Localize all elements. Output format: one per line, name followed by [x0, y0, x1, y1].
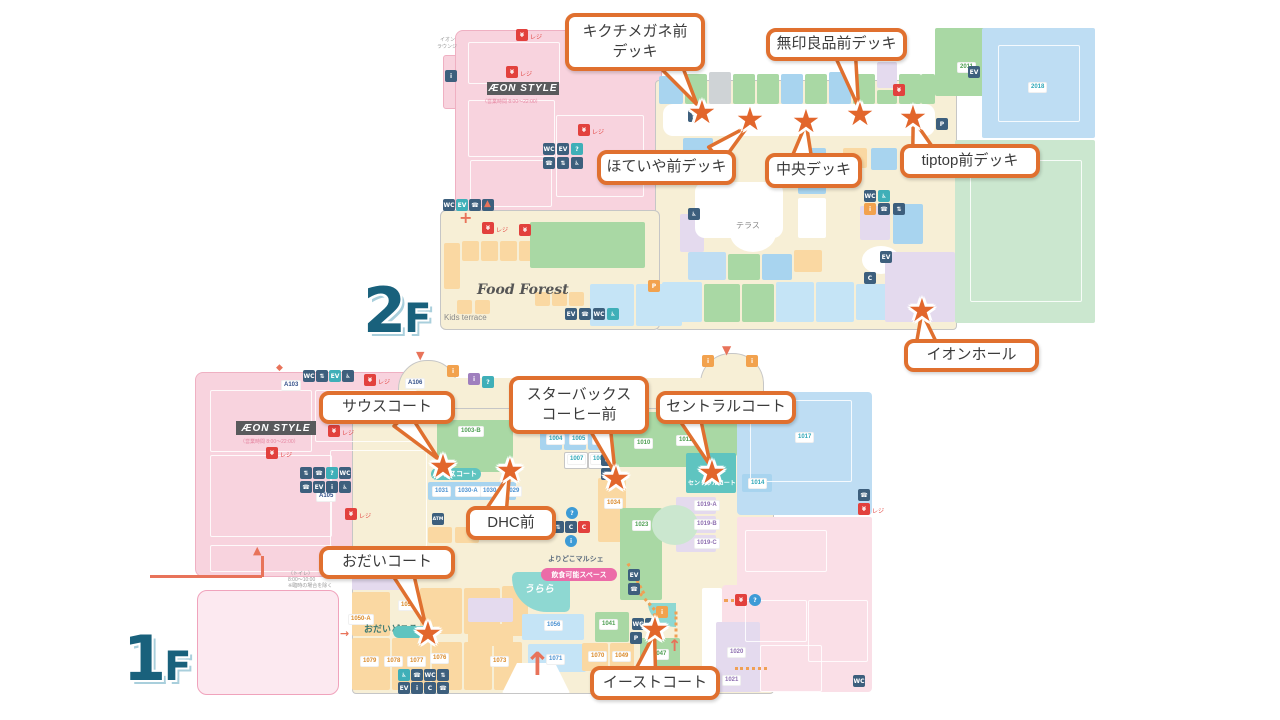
cashier-icon: ¥	[516, 29, 528, 41]
callout-label: tiptop前デッキ	[922, 151, 1019, 171]
phone-icon: ☎	[628, 583, 640, 595]
callout-label: スターバックス	[527, 385, 631, 405]
star-aeon-hall[interactable]: ★	[908, 294, 937, 326]
shop-number-badge: 2018	[1028, 82, 1047, 93]
escalator-icon: ⇅	[893, 203, 905, 215]
map-block	[776, 282, 814, 322]
dotted-route	[735, 667, 767, 670]
callout-label: DHC前	[487, 513, 535, 533]
map-block	[794, 250, 822, 272]
cashier-icon: ¥	[328, 425, 340, 437]
map-block	[444, 243, 460, 289]
cashier-icon: ¥	[506, 66, 518, 78]
route-line	[261, 556, 264, 577]
callout-label: ほていや前デッキ	[606, 157, 726, 177]
map-block	[468, 598, 513, 622]
star-starbucks[interactable]: ★	[602, 462, 631, 494]
elevator-icon: EV	[628, 569, 640, 581]
cashier-icon: ¥	[345, 508, 357, 520]
map-block	[500, 241, 517, 261]
medical-cross-icon: +	[459, 210, 472, 226]
shop-number-badge: 1030-A	[455, 486, 481, 497]
guide-icon: i	[746, 355, 758, 367]
cashier-label: レジ	[378, 377, 390, 386]
service-icon: i	[468, 373, 480, 385]
shop-number-badge: 1079	[360, 656, 379, 667]
star-odai-court[interactable]: ★	[414, 617, 443, 649]
map-text: よりどこマルシェ	[548, 554, 604, 564]
toilet-icon: WC	[853, 675, 865, 687]
guide-icon: i	[864, 203, 876, 215]
callout-label: 無印良品前デッキ	[776, 34, 896, 54]
callout-dhc-mae[interactable]: DHC前	[466, 506, 556, 540]
shop-number-badge: 1070	[588, 651, 607, 662]
shop-number-badge: 1077	[407, 656, 426, 667]
elevator-icon: EV	[565, 308, 577, 320]
wheelchair-icon: ♿	[878, 190, 890, 202]
elevator-icon: EV	[557, 143, 569, 155]
wheelchair-icon: ♿	[607, 308, 619, 320]
callout-east-court[interactable]: イーストコート	[590, 666, 720, 700]
map-block	[530, 222, 645, 268]
info-icon: ?	[749, 594, 761, 606]
elevator-icon: EV	[313, 481, 325, 493]
callout-starbucks-mae[interactable]: スターバックスコーヒー前	[509, 376, 649, 434]
aeon-style-logo: ÆON STYLE	[236, 421, 316, 435]
map-text: Kids terrace	[444, 313, 487, 322]
map-block	[798, 198, 826, 238]
shop-number-badge: A106	[405, 378, 425, 389]
shop-number-badge: 1004	[546, 434, 565, 445]
map-block	[742, 284, 774, 322]
star-hoteiya-deck[interactable]: ★	[736, 103, 765, 135]
outparcel-block	[197, 590, 339, 695]
map-text: Food Forest	[477, 282, 569, 298]
toilet-icon: WC	[593, 308, 605, 320]
shop-number-badge: 1041	[599, 619, 618, 630]
phone-icon: ☎	[411, 669, 423, 681]
cashier-icon: ¥	[519, 224, 531, 236]
route-arrow: ▲	[253, 545, 261, 556]
phone-icon: ☎	[300, 481, 312, 493]
guide-icon: i	[411, 682, 423, 694]
callout-label: サウスコート	[342, 397, 432, 417]
cashier-icon: ¥	[893, 84, 905, 96]
shop-number-badge: 1073	[490, 656, 509, 667]
cashier-label: レジ	[496, 225, 508, 234]
shop-number-badge: 1007	[567, 454, 586, 465]
callout-central-court[interactable]: セントラルコート	[656, 391, 796, 424]
escalator-icon: ⇅	[437, 669, 449, 681]
shop-number-badge: 1019-C	[694, 538, 720, 549]
map-block	[468, 624, 513, 646]
toilet-icon: WC	[543, 143, 555, 155]
shop-number-badge: A103	[281, 380, 301, 391]
callout-label: おだいコート	[342, 552, 432, 572]
callout-label: セントラルコート	[666, 397, 786, 417]
phone-icon: ☎	[543, 157, 555, 169]
entrance-arrow-down: ▼	[416, 350, 424, 361]
info-icon: ?	[571, 143, 583, 155]
aeon-style-logo: ÆON STYLE	[487, 82, 559, 95]
info-icon: i	[565, 535, 577, 547]
toilet-icon: WC	[303, 370, 315, 382]
map-block	[462, 241, 479, 261]
callout-muji-deck[interactable]: 無印良品前デッキ	[766, 28, 907, 61]
toilet-icon: WC	[424, 669, 436, 681]
entrance-arrow-down: ▼	[722, 344, 731, 356]
info-icon: ?	[566, 507, 578, 519]
shop-number-badge: 1020	[727, 647, 746, 658]
map-text: （営業時間 8:00〜22:00）	[482, 98, 541, 105]
map-text: （営業時間 8:00〜22:00）	[240, 438, 299, 445]
floor-label-1f: 1F	[123, 628, 189, 690]
info-icon: ?	[326, 467, 338, 479]
parking-icon: P	[648, 280, 660, 292]
cart-icon: C	[424, 682, 436, 694]
shop-number-badge: 1076	[430, 653, 449, 664]
callout-kikuchi-megane-deck[interactable]: キクチメガネ前デッキ	[565, 13, 705, 71]
star-chuo-deck[interactable]: ★	[792, 105, 821, 137]
callout-label: 中央デッキ	[776, 160, 851, 180]
cashier-label: レジ	[280, 450, 292, 459]
shop-number-badge: 1014	[748, 478, 767, 489]
cashier-label: レジ	[342, 428, 354, 437]
phone-icon: ☎	[878, 203, 890, 215]
atm-icon: ATM	[432, 513, 444, 525]
star-central-court[interactable]: ★	[698, 456, 727, 488]
shop-number-badge: 1019-B	[694, 519, 720, 530]
route-arrow: →	[340, 628, 349, 639]
map-text: うらら	[524, 580, 554, 595]
guide-icon: i	[702, 355, 714, 367]
map-block	[704, 284, 740, 322]
entrance-marker: ◆	[276, 364, 283, 373]
entrance-marker: ▲	[484, 200, 491, 209]
map-block	[805, 74, 827, 104]
parking-icon: P	[936, 118, 948, 130]
dotted-route	[675, 612, 678, 638]
callout-tiptop-deck[interactable]: tiptop前デッキ	[900, 144, 1040, 178]
map-text: ※臨時の場合を除く	[288, 582, 332, 589]
callout-south-court[interactable]: サウスコート	[319, 391, 455, 424]
map-text: ラウンジ	[437, 43, 457, 50]
phone-icon: ☎	[437, 682, 449, 694]
escalator-icon: ⇅	[316, 370, 328, 382]
shop-number-badge: 1034	[604, 498, 623, 509]
callout-label: デッキ	[612, 42, 657, 62]
garden-blob	[652, 505, 698, 545]
cashier-icon: ¥	[578, 124, 590, 136]
map-block	[464, 642, 492, 690]
entrance-arrow-up: ↑	[524, 648, 551, 680]
star-east-court[interactable]: ★	[641, 613, 670, 645]
elevator-icon: EV	[398, 682, 410, 694]
shop-number-badge: 1078	[384, 656, 403, 667]
callout-label: イーストコート	[603, 673, 707, 693]
map-block	[816, 282, 854, 322]
shop-number-badge: 1049	[612, 651, 631, 662]
cart-icon: C	[578, 521, 590, 533]
cashier-label: レジ	[520, 69, 532, 78]
wheelchair-icon: ♿	[398, 669, 410, 681]
shop-number-badge: 1017	[795, 432, 814, 443]
map-block	[781, 74, 803, 104]
floor-number-1f: 1	[123, 622, 164, 695]
wheelchair-icon: ♿	[339, 481, 351, 493]
map-block	[428, 527, 452, 543]
wheelchair-icon: ♿	[688, 208, 700, 220]
info-icon: ?	[482, 376, 494, 388]
shop-number-badge: 1023	[632, 520, 651, 531]
route-line	[150, 575, 262, 578]
map-block	[457, 300, 472, 314]
cashier-label: レジ	[359, 511, 371, 520]
elevator-icon: EV	[880, 251, 892, 263]
toilet-icon: WC	[864, 190, 876, 202]
guide-icon: i	[326, 481, 338, 493]
shop-number-badge: 1031	[432, 486, 451, 497]
cashier-icon: ¥	[482, 222, 494, 234]
entrance-arrow-up: ↑	[668, 638, 681, 654]
cashier-label: レジ	[592, 127, 604, 136]
cart-icon: C	[864, 272, 876, 284]
star-muji-deck[interactable]: ★	[846, 98, 875, 130]
cashier-icon: ¥	[364, 374, 376, 386]
floor-number-2f: 2	[363, 274, 404, 347]
eatin-space-pill: 飲食可能スペース	[541, 568, 617, 581]
map-layers: 20112018¥レジ¥レジ¥レジWCEV?☎⇅♿iWCEV☎♿¥レジ¥⇅♿¥P…	[0, 0, 1280, 720]
cashier-icon: ¥	[735, 594, 747, 606]
cashier-icon: ¥	[266, 447, 278, 459]
callout-hoteiya-deck[interactable]: ほていや前デッキ	[597, 150, 736, 185]
wheelchair-icon: ♿	[571, 157, 583, 169]
escalator-icon: ⇅	[300, 467, 312, 479]
cart-icon: C	[565, 521, 577, 533]
callout-odai-court[interactable]: おだいコート	[319, 546, 455, 579]
star-south-court[interactable]: ★	[429, 450, 458, 482]
star-kikuchi-deck[interactable]: ★	[688, 96, 717, 128]
shop-number-badge: 1010	[634, 438, 653, 449]
mall-floor-map: 20112018¥レジ¥レジ¥レジWCEV?☎⇅♿iWCEV☎♿¥レジ¥⇅♿¥P…	[0, 0, 1280, 720]
toilet-icon: WC	[339, 467, 351, 479]
phone-icon: ☎	[579, 308, 591, 320]
star-dhc[interactable]: ★	[496, 454, 525, 486]
shop-number-badge: 1019-A	[694, 500, 720, 511]
elevator-icon: EV	[329, 370, 341, 382]
floor-label-2f: 2F	[363, 280, 429, 342]
map-block	[569, 292, 584, 306]
wheelchair-icon: ♿	[342, 370, 354, 382]
phone-icon: ☎	[858, 489, 870, 501]
elevator-icon: EV	[968, 66, 980, 78]
service-icon: i	[445, 70, 457, 82]
toilet-icon: WC	[443, 199, 455, 211]
star-tiptop-deck[interactable]: ★	[899, 101, 928, 133]
shop-number-badge: 1003-B	[458, 426, 484, 437]
map-block	[762, 254, 792, 280]
callout-label: コーヒー前	[541, 405, 616, 425]
map-text: テラス	[736, 220, 760, 231]
callout-chuo-deck[interactable]: 中央デッキ	[765, 153, 862, 188]
shop-number-badge: 1005	[569, 434, 588, 445]
callout-aeon-hall[interactable]: イオンホール	[904, 339, 1039, 372]
shop-number-badge: 1021	[722, 675, 741, 686]
map-block	[871, 148, 897, 170]
cashier-label: レジ	[872, 506, 884, 515]
phone-icon: ☎	[313, 467, 325, 479]
map-block	[481, 241, 498, 261]
shop-number-badge: 1056	[544, 620, 563, 631]
map-block	[728, 254, 760, 280]
cashier-label: レジ	[530, 32, 542, 41]
cashier-icon: ¥	[858, 503, 870, 515]
escalator-icon: ⇅	[557, 157, 569, 169]
callout-label: イオンホール	[926, 345, 1016, 365]
map-block	[475, 300, 490, 314]
map-text: イオン	[440, 36, 455, 43]
guide-icon: i	[447, 365, 459, 377]
callout-label: キクチメガネ前	[582, 22, 687, 42]
map-block	[688, 252, 726, 280]
